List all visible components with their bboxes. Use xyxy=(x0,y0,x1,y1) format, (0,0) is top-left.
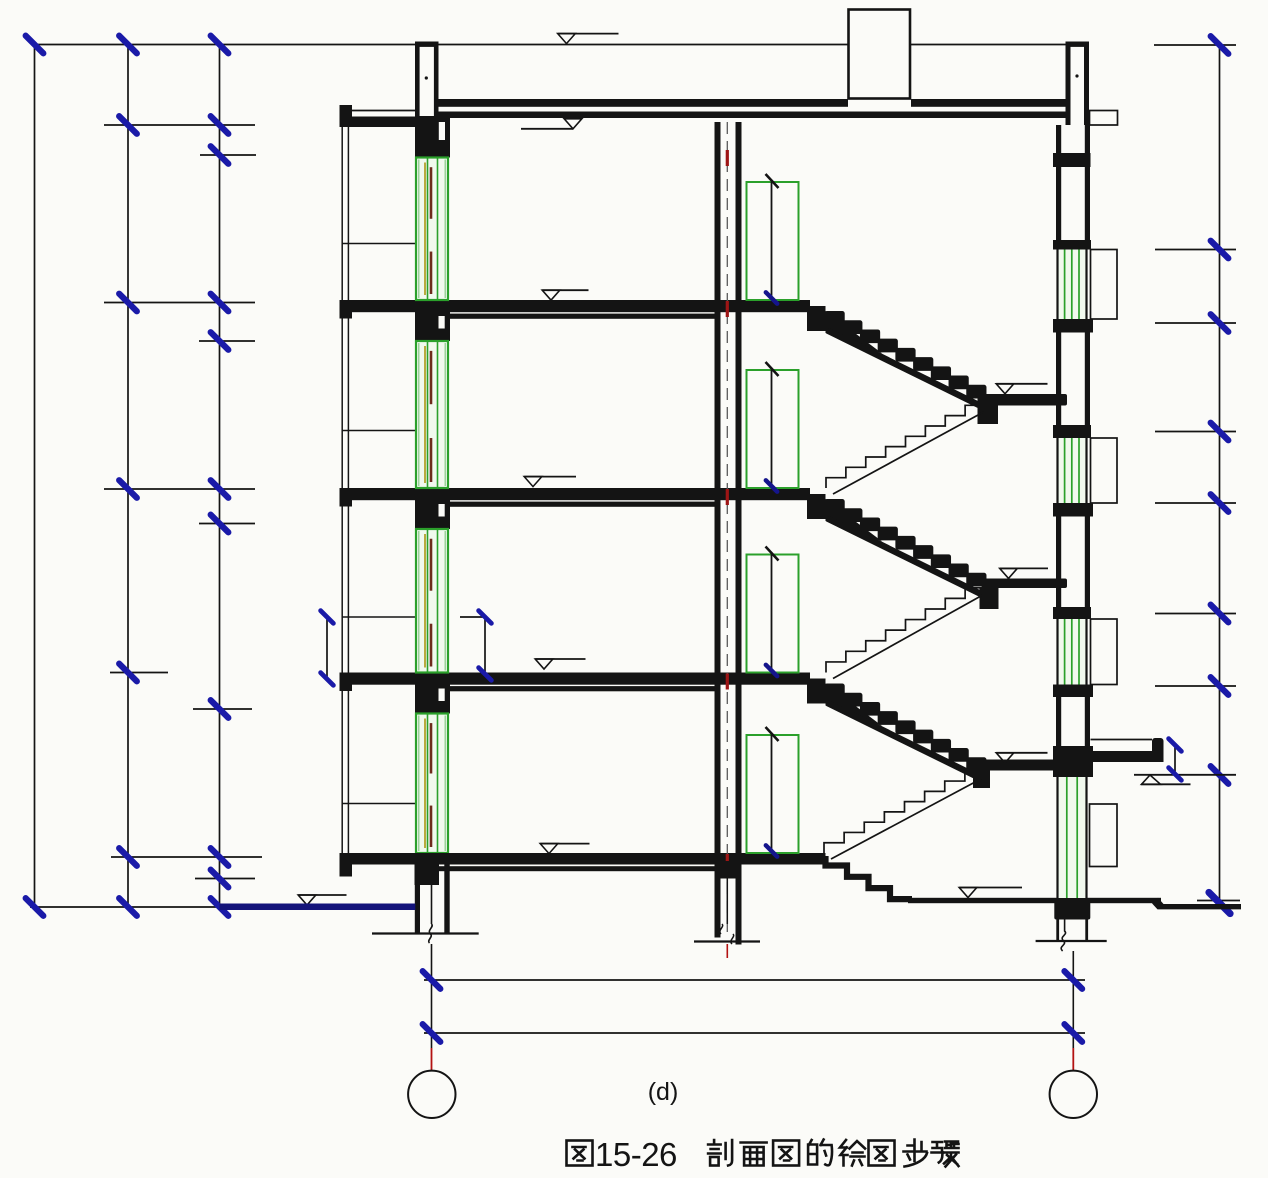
svg-text:15-26: 15-26 xyxy=(595,1136,677,1173)
svg-text:(d): (d) xyxy=(648,1078,679,1106)
